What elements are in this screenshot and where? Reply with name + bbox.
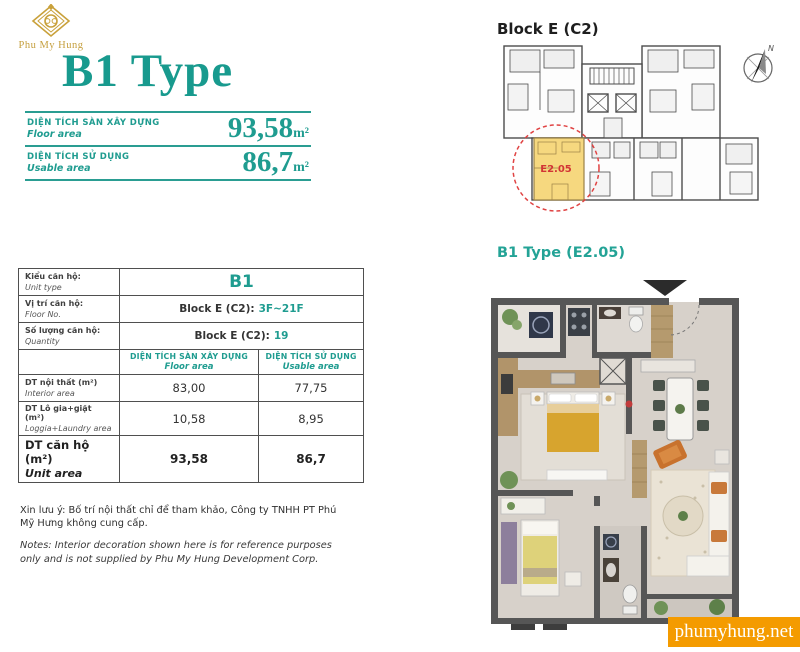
- quantity-label-vi: Số lượng căn hộ:: [25, 326, 113, 335]
- table-row-quantity: Số lượng căn hộ: Quantity Block E (C2):1…: [19, 323, 364, 350]
- floor-area-label-vi: DIỆN TÍCH SÀN XÂY DỰNG: [27, 118, 160, 128]
- pillow: [549, 394, 571, 402]
- total-label-vi: DT căn hộ (m²): [25, 438, 113, 466]
- chair: [565, 572, 581, 586]
- toilet-tank: [629, 307, 643, 315]
- table-row-floor-no: Vị trí căn hộ: Floor No. Block E (C2):3F…: [19, 296, 364, 323]
- unit-label: E2.05: [540, 164, 572, 175]
- table-row-loggia: DT Lô gia+giặt (m²) Loggia+Laundry area …: [19, 402, 364, 436]
- table-row-interior: DT nội thất (m²) Interior area 83,00 77,…: [19, 375, 364, 402]
- ac-unit: [543, 624, 567, 630]
- sofa-chaise: [687, 556, 729, 576]
- note-vietnamese: Xin lưu ý: Bố trí nội thất chỉ để tham k…: [20, 504, 338, 530]
- total-floor-value: 93,58: [120, 436, 259, 483]
- console: [641, 360, 695, 372]
- sofa-pillow: [711, 482, 727, 494]
- quantity-label-en: Quantity: [25, 337, 113, 346]
- usable-area-label-en: Usable area: [27, 163, 129, 174]
- plant: [678, 511, 688, 521]
- quantity-value: Block E (C2):19: [120, 323, 364, 350]
- pillow: [523, 522, 557, 534]
- table-row-total: DT căn hộ (m²) Unit area 93,58 86,7: [19, 436, 364, 483]
- kitchen-counter: [498, 358, 518, 436]
- floor-no-value: Block E (C2):3F~21F: [120, 296, 364, 323]
- spec-table: Kiểu căn hộ: Unit type B1 Vị trí căn hộ:…: [18, 268, 364, 483]
- kitchen-sink: [501, 374, 513, 394]
- interior-label-en: Interior area: [25, 389, 113, 398]
- unit-floor-plan: [491, 272, 739, 650]
- note-english: Notes: Interior decoration shown here is…: [20, 539, 338, 565]
- sofa-pillow: [711, 530, 727, 542]
- page: Phu My Hung B1 Type DIỆN TÍCH SÀN XÂY DỰ…: [0, 0, 800, 652]
- unit-plan-title: B1 Type (E2.05): [497, 245, 625, 261]
- usable-area-value: 86,7m²: [242, 148, 309, 177]
- table-row-unit-type: Kiểu căn hộ: Unit type B1: [19, 269, 364, 296]
- area-summary: DIỆN TÍCH SÀN XÂY DỰNG Floor area 93,58m…: [25, 111, 311, 181]
- loggia-usable-value: 8,95: [259, 402, 364, 436]
- plant: [500, 471, 518, 489]
- pillow: [575, 394, 597, 402]
- compass-north-label: N: [768, 44, 774, 53]
- bedroom2-rug: [501, 522, 517, 584]
- floor-area-row: DIỆN TÍCH SÀN XÂY DỰNG Floor area 93,58m…: [25, 111, 311, 145]
- interior-floor-value: 83,00: [120, 375, 259, 402]
- unit-type-value: B1: [120, 269, 364, 296]
- interior-usable-value: 77,75: [259, 375, 364, 402]
- loggia-label-vi: DT Lô gia+giặt (m²): [25, 404, 113, 422]
- unit-type-label-en: Unit type: [25, 283, 113, 292]
- usable-area-label-vi: DIỆN TÍCH SỬ DỤNG: [27, 152, 129, 162]
- notes: Xin lưu ý: Bố trí nội thất chỉ để tham k…: [20, 504, 338, 566]
- compass-icon: N: [738, 40, 782, 88]
- plant: [654, 601, 668, 615]
- stove: [568, 308, 590, 336]
- side-table: [715, 450, 729, 464]
- block-floor-plate-diagram: E2.05: [492, 38, 764, 218]
- unit-type-label-vi: Kiểu căn hộ:: [25, 272, 113, 281]
- block-plan-title: Block E (C2): [497, 20, 599, 38]
- floor-no-label-vi: Vị trí căn hộ:: [25, 299, 113, 308]
- usable-area-row: DIỆN TÍCH SỬ DỤNG Usable area 86,7m²: [25, 145, 311, 179]
- col-header-floor-area: DIỆN TÍCH SÀN XÂY DỰNG Floor area: [120, 350, 259, 375]
- closet: [651, 305, 673, 358]
- cooktop: [551, 373, 575, 384]
- centerpiece-plant: [675, 404, 685, 414]
- plant: [709, 599, 725, 615]
- total-usable-value: 86,7: [259, 436, 364, 483]
- toilet: [630, 316, 643, 332]
- table-header-row: DIỆN TÍCH SÀN XÂY DỰNG Floor area DIỆN T…: [19, 350, 364, 375]
- total-label-en: Unit area: [25, 467, 113, 480]
- interior-label-vi: DT nội thất (m²): [25, 378, 113, 387]
- lotus-ornament-icon: [29, 4, 73, 38]
- toilet: [623, 585, 637, 603]
- hall-closet: [632, 440, 647, 498]
- plant: [512, 320, 522, 330]
- bench: [547, 470, 607, 480]
- watermark: phumyhung.net: [668, 617, 800, 647]
- fire-valve: [626, 401, 633, 408]
- floor-area-label-en: Floor area: [27, 129, 160, 140]
- loggia-floor-value: 10,58: [120, 402, 259, 436]
- loggia-label-en: Loggia+Laundry area: [25, 424, 113, 433]
- entrance-arrow-icon: [643, 280, 687, 296]
- floor-no-label-en: Floor No.: [25, 310, 113, 319]
- floor-area-value: 93,58m²: [228, 114, 309, 143]
- col-header-usable-area: DIỆN TÍCH SỬ DỤNG Usable area: [259, 350, 364, 375]
- ac-unit: [511, 624, 535, 630]
- page-title: B1 Type: [62, 44, 233, 98]
